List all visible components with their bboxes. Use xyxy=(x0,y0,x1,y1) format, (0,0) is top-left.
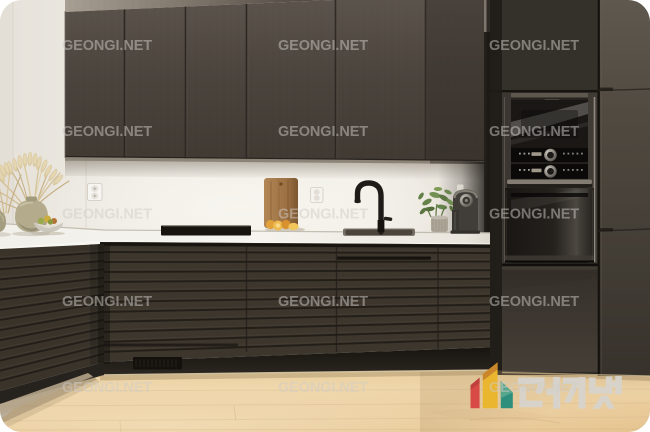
svg-text:GEONGI.NET: GEONGI.NET xyxy=(278,207,368,223)
svg-text:GEONGI.NET: GEONGI.NET xyxy=(278,124,368,140)
svg-text:GEONGI.NET: GEONGI.NET xyxy=(62,207,152,223)
svg-text:GEONGI.NET: GEONGI.NET xyxy=(278,294,368,310)
svg-text:GEONGI.NET: GEONGI.NET xyxy=(62,294,152,310)
svg-text:GEONGI.NET: GEONGI.NET xyxy=(489,38,579,54)
svg-text:GEONGI.NET: GEONGI.NET xyxy=(489,380,579,396)
svg-text:GEONGI.NET: GEONGI.NET xyxy=(489,294,579,310)
svg-text:GEONGI.NET: GEONGI.NET xyxy=(278,380,368,396)
svg-text:GEONGI.NET: GEONGI.NET xyxy=(62,380,152,396)
svg-text:GEONGI.NET: GEONGI.NET xyxy=(278,38,368,54)
svg-text:GEONGI.NET: GEONGI.NET xyxy=(62,38,152,54)
svg-text:GEONGI.NET: GEONGI.NET xyxy=(62,124,152,140)
svg-text:GEONGI.NET: GEONGI.NET xyxy=(489,207,579,223)
svg-text:GEONGI.NET: GEONGI.NET xyxy=(489,124,579,140)
